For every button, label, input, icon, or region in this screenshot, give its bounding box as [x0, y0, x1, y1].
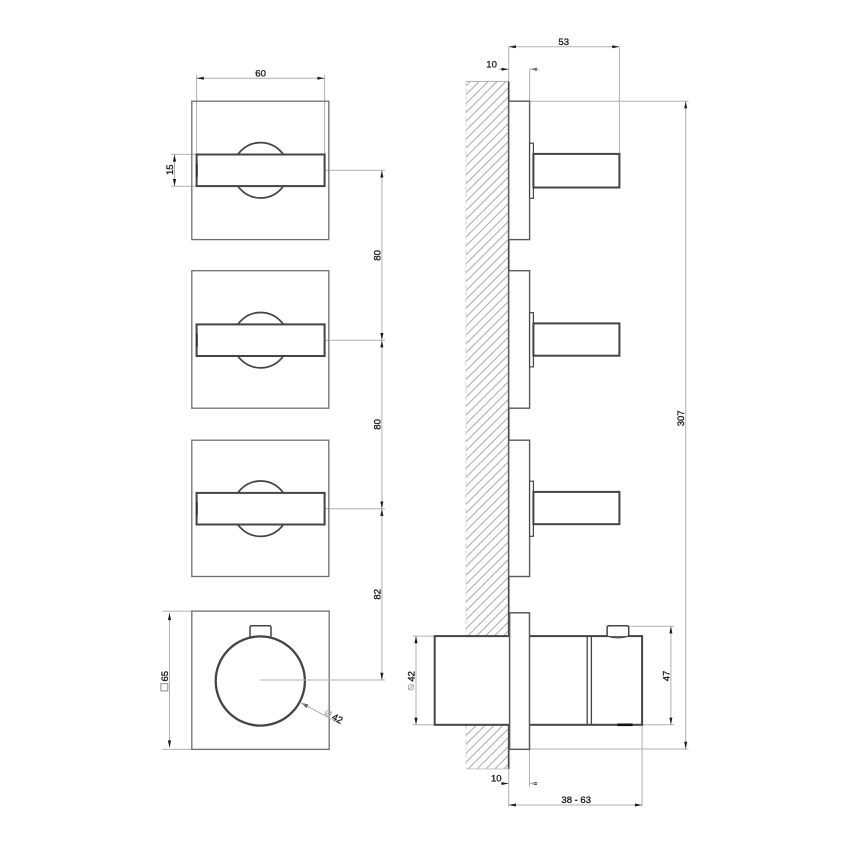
svg-text:80: 80 [372, 419, 383, 430]
svg-text:38 - 63: 38 - 63 [561, 795, 591, 806]
svg-text:42: 42 [407, 671, 418, 682]
svg-text:307: 307 [676, 410, 687, 426]
svg-text:60: 60 [255, 69, 266, 80]
svg-text:82: 82 [372, 589, 383, 600]
svg-text:53: 53 [558, 37, 569, 48]
svg-text:65: 65 [160, 671, 171, 682]
svg-text:15: 15 [165, 164, 176, 175]
svg-text:10: 10 [491, 774, 502, 785]
svg-text:47: 47 [661, 671, 672, 682]
svg-text:80: 80 [372, 250, 383, 261]
svg-text:10: 10 [486, 59, 497, 70]
